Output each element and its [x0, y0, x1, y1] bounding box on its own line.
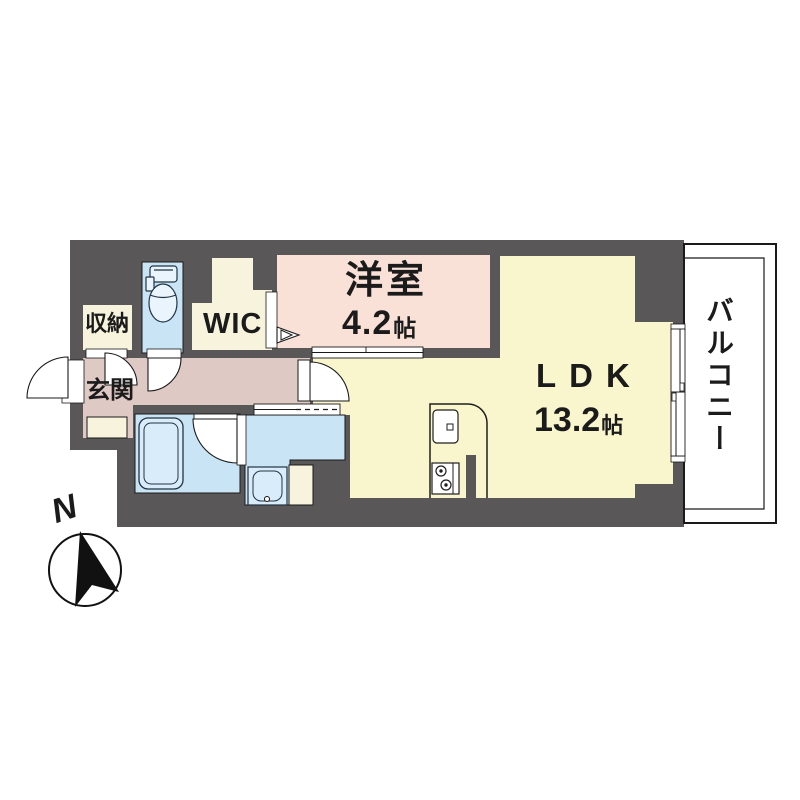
western-room-size-unit: 帖 — [393, 317, 417, 340]
western-room-size-value: 4.2 — [342, 306, 392, 340]
entrance-label: 玄関 — [86, 379, 134, 403]
western-room-size: 4.2帖 — [342, 306, 417, 340]
north-compass — [49, 531, 121, 607]
sliding-door-western-room — [312, 347, 423, 358]
ldk-label: LDK — [536, 359, 643, 392]
ldk-size: 13.2帖 — [534, 403, 624, 437]
balcony-label: バルコニー — [704, 296, 732, 481]
western-room-label: 洋室 — [345, 262, 427, 300]
ldk-size-unit: 帖 — [601, 415, 624, 437]
entrance-door-swing-icon — [27, 357, 84, 403]
sliding-door-washroom — [254, 404, 340, 415]
kitchen-sink-icon — [433, 410, 458, 443]
laundry-space — [289, 465, 313, 505]
bathtub-icon — [139, 418, 183, 489]
stove-icon — [432, 463, 459, 494]
entrance-step — [87, 417, 127, 438]
floor-plan-canvas: 洋室 4.2帖 LDK 13.2帖 WIC 収納 玄関 バルコニー N — [0, 0, 800, 800]
wic-opening — [266, 292, 277, 348]
storage-label: 収納 — [85, 313, 129, 335]
washbasin-icon — [248, 467, 287, 505]
wic-label: WIC — [203, 310, 262, 339]
ldk-size-value: 13.2 — [534, 403, 600, 437]
sliding-window-icon — [671, 324, 685, 462]
